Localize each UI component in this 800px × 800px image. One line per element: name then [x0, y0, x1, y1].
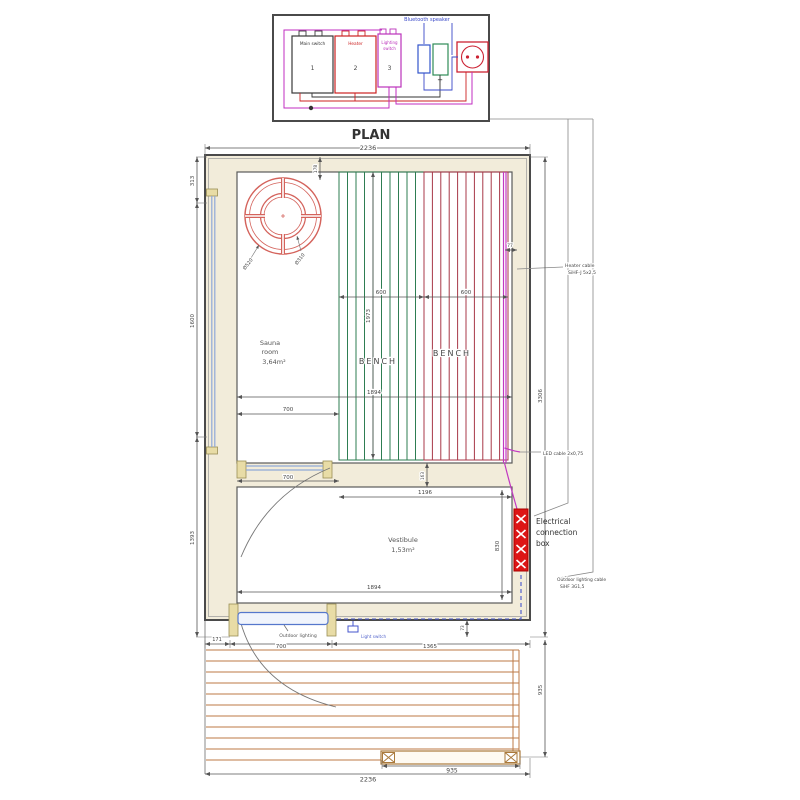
note-connection-box-2: connection	[536, 528, 578, 537]
dim-label-right-total: 3306	[538, 389, 544, 403]
sauna-room-interior	[237, 172, 512, 463]
dim-label-bench-right: 600	[461, 290, 472, 296]
deck-planks	[206, 650, 519, 763]
dim-label-vest-depth: 830	[495, 540, 501, 551]
note-heater-cable-2: SiHF-J 5x2,5	[568, 270, 596, 276]
dim-label-left-top: 313	[190, 175, 196, 186]
electrical-connection-box	[514, 509, 528, 571]
heater-unit-label: Heater	[348, 41, 363, 47]
dim-label-bottom-width: 2236	[360, 776, 377, 784]
note-outdoor-cable-1: Outdoor lighting cable	[557, 577, 606, 583]
plan-title: PLAN	[352, 128, 391, 143]
window-post-bottom	[207, 447, 218, 454]
note-heater-cable-1: Heater cable	[565, 263, 595, 269]
dim-label-left-sauna: 1600	[190, 314, 196, 328]
note-outdoor-lighting: Outdoor lighting	[279, 633, 317, 639]
dim-label-deck-door: 700	[276, 644, 287, 650]
outdoor-light-strip	[238, 613, 328, 625]
vestibule-label: Vestibule	[388, 536, 418, 544]
light-switch-icon	[348, 621, 358, 632]
technical-drawing: Ø520 Ø310 Bluetooth speaker	[0, 0, 800, 800]
outdoor-lighting-leader	[284, 625, 288, 631]
dim-label-vest-clear: 1196	[418, 490, 432, 496]
glass-post-left	[237, 461, 246, 478]
note-led-cable: LED cable 2x0,75	[543, 451, 583, 457]
dim-label-top-width: 2236	[360, 144, 377, 152]
door-jamb-left	[229, 604, 238, 636]
sauna-room-label-2: room	[262, 348, 279, 356]
dim-label-bench-left: 600	[376, 290, 387, 296]
dim-label-right-deck: 935	[538, 684, 544, 695]
main-switch-number: 1	[311, 65, 315, 72]
sauna-plan-drawing: Ø520 Ø310 Bluetooth speaker	[0, 0, 800, 800]
sauna-room-label-1: Sauna	[260, 339, 280, 347]
dim-label-bench-length: 1973	[366, 309, 372, 323]
bluetooth-speaker-label: Bluetooth speaker	[404, 17, 451, 23]
dim-label-glass-width: 700	[283, 475, 294, 481]
lighting-unit-number: 3	[388, 65, 392, 72]
lighting-unit-label-2: switch	[383, 46, 396, 51]
dim-label-deck-right: 1365	[423, 644, 437, 650]
building-walls	[205, 155, 530, 620]
lighting-unit-label-1: Lighting	[381, 40, 398, 45]
sauna-room-area: 3,64m²	[262, 358, 286, 366]
dim-label-sauna-clear: 700	[283, 407, 294, 413]
note-outdoor-cable-2: SiHF 3G1,5	[560, 584, 585, 590]
bench-left-label: BENCH	[359, 357, 397, 366]
deck-step-bench	[381, 751, 520, 764]
dim-label-step: 73	[460, 625, 465, 631]
window-post-top	[207, 189, 218, 196]
vestibule-area: 1,53m²	[391, 546, 415, 554]
main-switch-label: Main switch	[300, 41, 326, 47]
dim-label-deck-bench: 935	[446, 768, 458, 775]
note-connection-box-1: Electrical	[536, 517, 570, 526]
note-connection-box-3: box	[536, 539, 550, 548]
dim-label-left-vestibule: 1393	[190, 531, 196, 545]
junction-dot	[309, 106, 313, 110]
note-light-switch: Light switch	[361, 634, 386, 639]
heater-unit-number: 2	[354, 65, 358, 72]
dim-label-vest-width: 1894	[367, 585, 381, 591]
dim-label-deck-left: 171	[212, 637, 222, 643]
dim-label-wall-gap: 163	[420, 472, 425, 480]
dim-label-right-wall: 77	[507, 243, 513, 249]
deck	[205, 620, 520, 774]
dim-label-sauna-width: 1894	[367, 390, 381, 396]
wiring-diagram: Bluetooth speaker Main switch 1 Heater 2…	[273, 15, 489, 121]
dim-label-top-wall: 178	[313, 165, 319, 174]
bench-right-label: BENCH	[433, 349, 471, 358]
